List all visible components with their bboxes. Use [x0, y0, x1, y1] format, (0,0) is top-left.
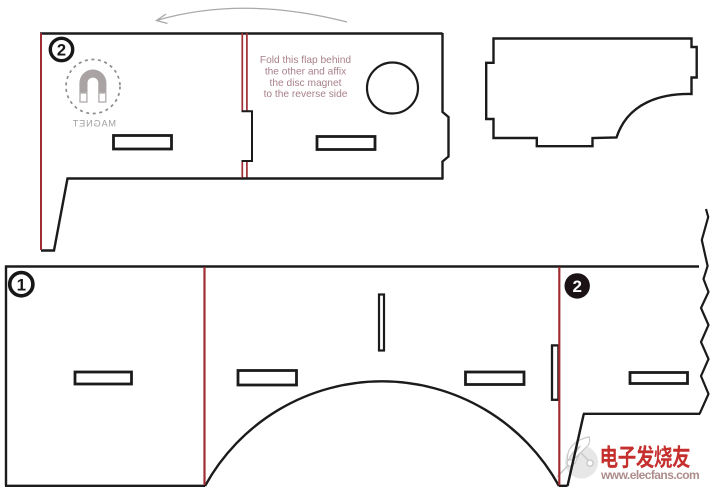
- svg-text:2: 2: [57, 41, 66, 59]
- svg-text:1: 1: [17, 276, 26, 295]
- svg-text:www.elecfans.com: www.elecfans.com: [600, 468, 699, 482]
- svg-text:the disc magnet: the disc magnet: [270, 78, 342, 89]
- svg-text:the other and affix: the other and affix: [265, 67, 346, 78]
- svg-text:Fold this flap behind: Fold this flap behind: [260, 55, 352, 66]
- svg-text:2: 2: [572, 277, 581, 296]
- svg-text:MAGNET: MAGNET: [72, 119, 116, 129]
- svg-text:to the reverse side: to the reverse side: [264, 89, 348, 100]
